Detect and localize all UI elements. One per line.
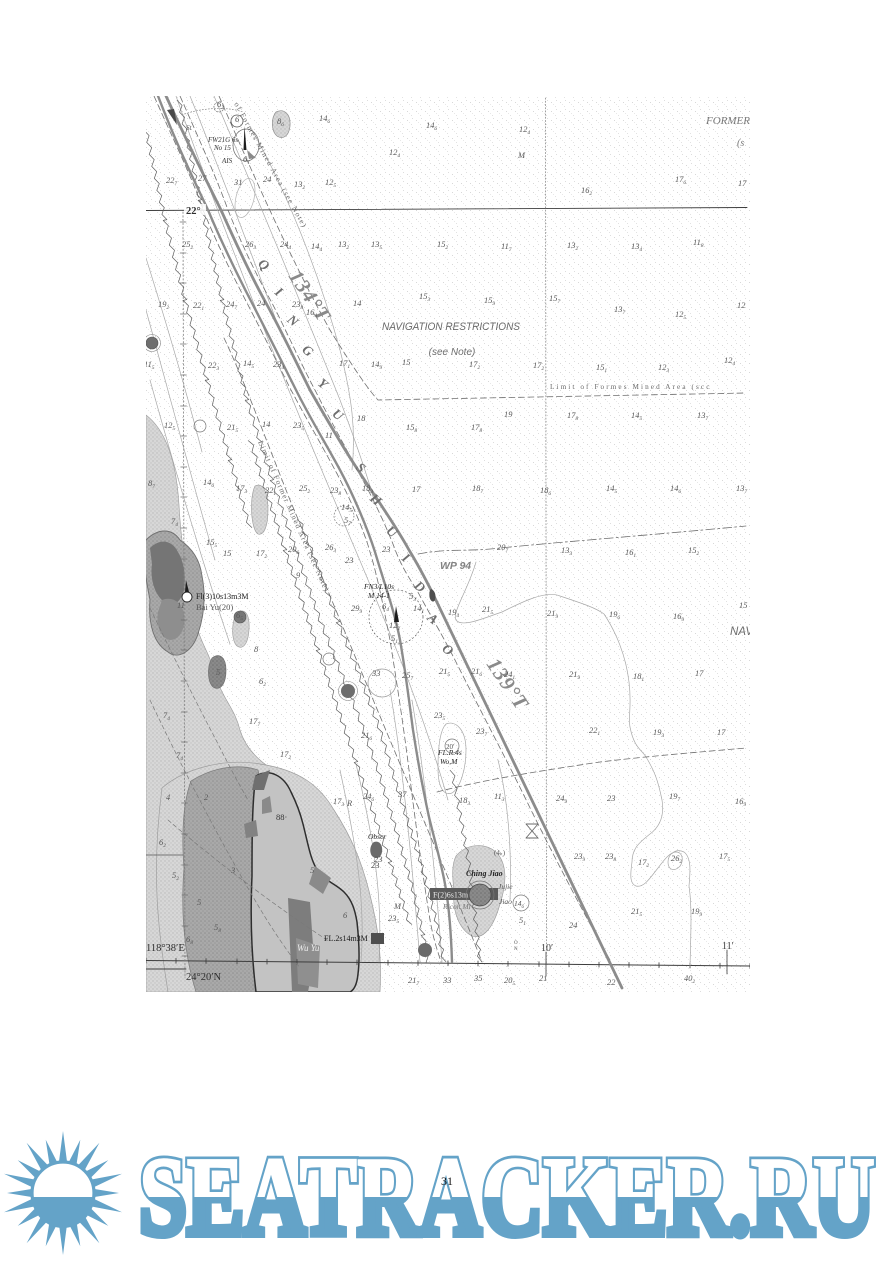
svg-text:19: 19 — [504, 410, 513, 419]
svg-text:No 15: No 15 — [213, 144, 231, 152]
svg-text:10′: 10′ — [541, 943, 553, 954]
svg-text:11′: 11′ — [722, 941, 734, 952]
svg-text:2: 2 — [204, 793, 208, 802]
svg-text:17: 17 — [412, 485, 421, 494]
svg-text:118°38′E: 118°38′E — [146, 943, 185, 954]
svg-text:24: 24 — [257, 299, 265, 308]
svg-text:11: 11 — [177, 601, 185, 610]
svg-text:23: 23 — [607, 794, 615, 803]
svg-text:24: 24 — [569, 921, 577, 930]
svg-text:21: 21 — [539, 974, 547, 983]
svg-text:Fl(3)10s13m3M: Fl(3)10s13m3M — [196, 592, 248, 601]
svg-text:FN3/L10s: FN3/L10s — [363, 582, 394, 591]
svg-text:23: 23 — [374, 855, 382, 864]
svg-text:18: 18 — [357, 414, 366, 423]
svg-text:Jujie: Jujie — [498, 882, 513, 891]
svg-text:23: 23 — [382, 545, 390, 554]
svg-text:24°20′N: 24°20′N — [186, 972, 221, 983]
svg-text:(s: (s — [737, 138, 744, 149]
svg-text:17: 17 — [738, 179, 747, 188]
svg-text:33: 33 — [371, 669, 380, 678]
svg-text:31: 31 — [441, 1174, 453, 1188]
svg-text:14: 14 — [353, 299, 361, 308]
svg-text:Obscr: Obscr — [368, 832, 386, 841]
svg-text:22°: 22° — [186, 206, 201, 217]
svg-text:3: 3 — [230, 866, 235, 875]
svg-text:FORMER: FORMER — [705, 115, 750, 127]
svg-text:O: O — [514, 941, 518, 946]
svg-text:M: M — [393, 902, 402, 911]
svg-text:N: N — [514, 947, 518, 952]
svg-text:5: 5 — [216, 668, 220, 677]
svg-text:FW21G 6s: FW21G 6s — [207, 136, 238, 144]
svg-text:33: 33 — [442, 976, 451, 985]
svg-text:20′: 20′ — [446, 743, 455, 751]
svg-text:24: 24 — [263, 175, 271, 184]
svg-text:22: 22 — [607, 978, 615, 987]
svg-text:17: 17 — [717, 728, 726, 737]
svg-text:(see Note): (see Note) — [429, 347, 476, 358]
svg-text:(4ₖ): (4ₖ) — [494, 849, 506, 857]
svg-text:Jiao: Jiao — [499, 897, 512, 906]
svg-text:15: 15 — [739, 601, 747, 610]
svg-text:15: 15 — [402, 358, 410, 367]
svg-text:23: 23 — [345, 556, 353, 565]
svg-text:AIS: AIS — [221, 157, 233, 165]
svg-text:12: 12 — [737, 301, 745, 310]
svg-text:4: 4 — [166, 793, 170, 802]
svg-text:Ching Jiao: Ching Jiao — [466, 869, 503, 878]
svg-text:27: 27 — [198, 174, 207, 183]
svg-text:31: 31 — [233, 178, 242, 187]
svg-text:Limit of Formes Mined Area (sc: Limit of Formes Mined Area (scc — [550, 383, 712, 391]
svg-text:Bai Yu(20): Bai Yu(20) — [196, 602, 233, 612]
svg-text:11: 11 — [325, 431, 333, 440]
svg-text:Ricon Mi: Ricon Mi — [442, 902, 471, 911]
svg-text:FL.2s14m3M: FL.2s14m3M — [324, 934, 368, 943]
svg-text:5: 5 — [197, 898, 201, 907]
svg-text:R: R — [346, 799, 352, 808]
svg-text:NAVIGATION RESTRICTIONS: NAVIGATION RESTRICTIONS — [382, 321, 521, 333]
svg-text:Wu Yu: Wu Yu — [297, 943, 320, 953]
svg-text:37: 37 — [397, 790, 407, 799]
svg-text:5: 5 — [310, 866, 314, 875]
svg-text:35: 35 — [473, 974, 482, 983]
svg-text:14: 14 — [262, 420, 270, 429]
svg-text:17: 17 — [695, 669, 704, 678]
svg-text:88·: 88· — [276, 812, 287, 822]
svg-text:M 14-1: M 14-1 — [367, 591, 390, 600]
svg-text:WP 94: WP 94 — [440, 560, 471, 572]
svg-text:M: M — [517, 151, 526, 160]
svg-text:15: 15 — [223, 549, 231, 558]
svg-text:Wo,M: Wo,M — [440, 757, 458, 766]
